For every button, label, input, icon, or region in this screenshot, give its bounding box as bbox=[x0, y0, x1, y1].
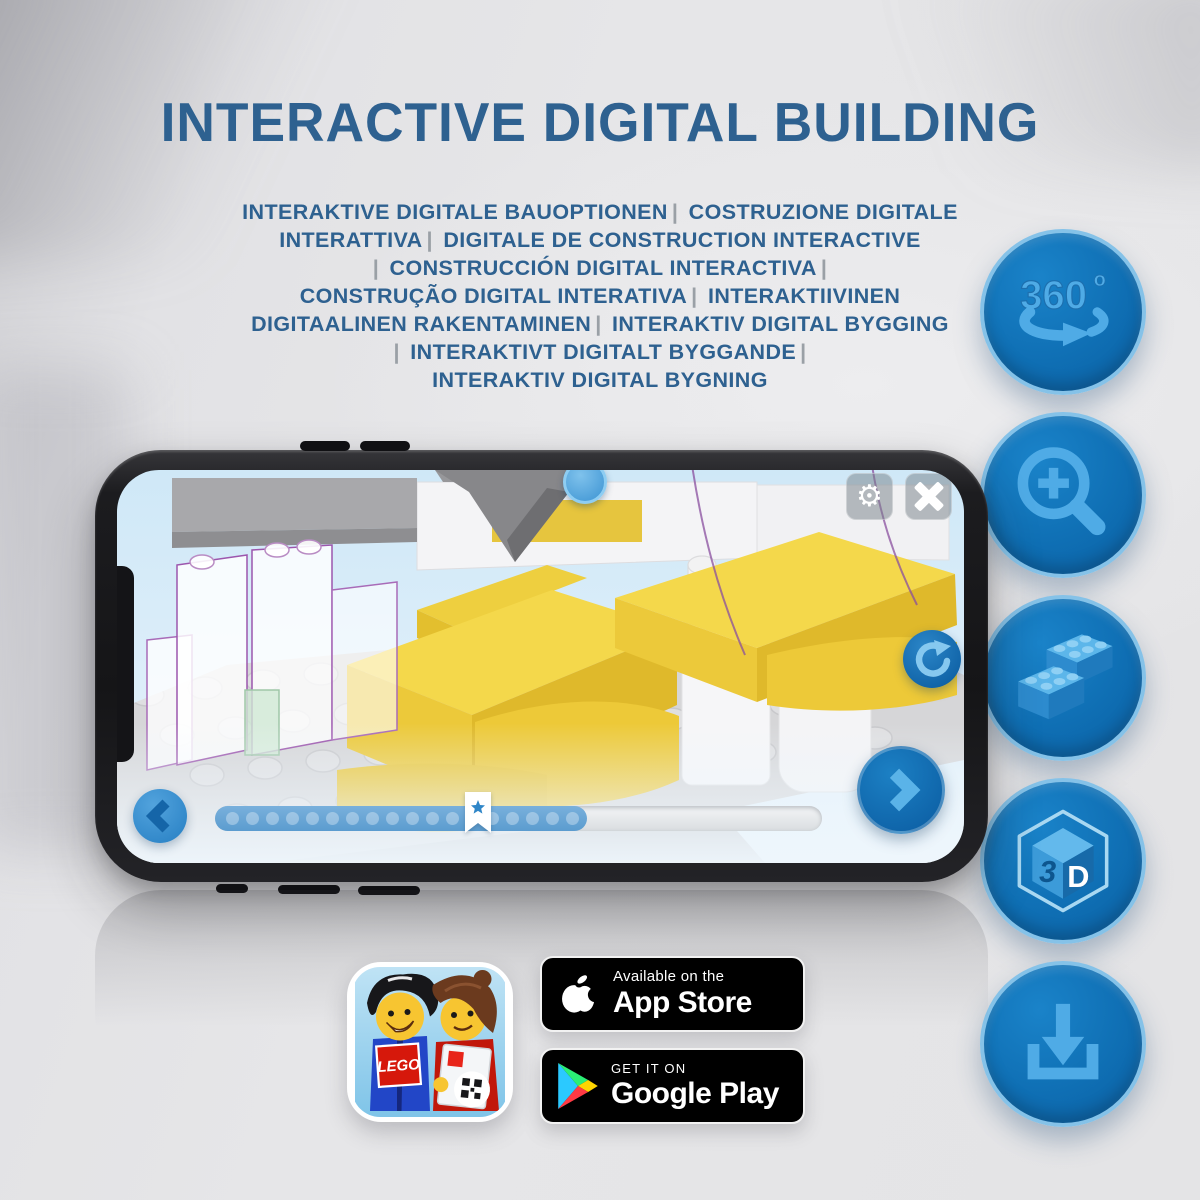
lego-logo: LEGO bbox=[376, 1044, 422, 1087]
progress-dot bbox=[546, 812, 559, 825]
badge-bottom-text: Google Play bbox=[611, 1077, 779, 1111]
progress-dot bbox=[286, 812, 299, 825]
badge-top-text: Available on the bbox=[613, 968, 752, 985]
phone-volume-button bbox=[360, 441, 410, 451]
google-play-icon bbox=[558, 1063, 598, 1109]
build-progress-slider[interactable] bbox=[215, 806, 822, 831]
svg-text:3: 3 bbox=[1039, 855, 1056, 889]
rotate-view-button[interactable] bbox=[903, 630, 961, 688]
rotate-icon bbox=[903, 630, 961, 688]
svg-text:LEGO: LEGO bbox=[377, 1056, 421, 1076]
apple-icon bbox=[558, 969, 600, 1019]
close-icon bbox=[907, 475, 951, 519]
download-badge bbox=[980, 961, 1146, 1127]
phone-side-button bbox=[358, 886, 420, 895]
progress-dot bbox=[506, 812, 519, 825]
progress-dot bbox=[446, 812, 459, 825]
svg-text:o: o bbox=[1094, 269, 1106, 291]
progress-dot bbox=[246, 812, 259, 825]
360-rotation-icon: 360 o bbox=[1004, 253, 1122, 371]
next-step-button[interactable] bbox=[857, 746, 945, 834]
settings-button[interactable]: ⚙ bbox=[846, 473, 893, 520]
page-title: INTERACTIVE DIGITAL BUILDING bbox=[18, 90, 1182, 154]
lego-app-icon[interactable]: LEGO bbox=[347, 962, 513, 1122]
progress-dot bbox=[426, 812, 439, 825]
progress-dot bbox=[526, 812, 539, 825]
progress-dot bbox=[346, 812, 359, 825]
download-icon bbox=[1004, 985, 1122, 1103]
lego-3d-model-view[interactable] bbox=[117, 470, 964, 863]
phone-screen: ⚙ bbox=[117, 470, 964, 863]
progress-dot bbox=[566, 812, 579, 825]
promo-canvas: INTERACTIVE DIGITAL BUILDING INTERAKTIVE… bbox=[0, 0, 1200, 1200]
zoom-in-icon bbox=[1004, 436, 1122, 554]
badge-bottom-text: App Store bbox=[613, 986, 752, 1020]
chevron-left-icon bbox=[133, 789, 187, 843]
progress-dot bbox=[386, 812, 399, 825]
phone-volume-button bbox=[300, 441, 350, 451]
phone-notch bbox=[117, 566, 134, 762]
app-store-badge[interactable]: Available on the App Store bbox=[540, 956, 805, 1032]
phone-side-button bbox=[278, 885, 340, 894]
progress-dot bbox=[226, 812, 239, 825]
transparent-ghost-bricks bbox=[147, 540, 397, 770]
360-rotation-badge: 360 o bbox=[980, 229, 1146, 395]
gear-icon: ⚙ bbox=[856, 482, 883, 512]
progress-dot bbox=[366, 812, 379, 825]
brick-badge bbox=[980, 595, 1146, 761]
progress-filled bbox=[215, 806, 587, 831]
badge-top-text: GET IT ON bbox=[611, 1061, 779, 1076]
phone-side-button bbox=[216, 884, 248, 893]
progress-dot bbox=[326, 812, 339, 825]
progress-dot bbox=[266, 812, 279, 825]
subtitle-line: INTERAKTIVE DIGITALE BAUOPTIONEN| COSTRU… bbox=[0, 198, 1200, 226]
progress-dot bbox=[306, 812, 319, 825]
3d-badge: 3 D bbox=[980, 778, 1146, 944]
lego-app-artwork: LEGO bbox=[352, 967, 508, 1117]
google-play-badge[interactable]: GET IT ON Google Play bbox=[540, 1048, 805, 1124]
feature-icon-column: 360 o bbox=[980, 229, 1146, 1127]
close-button[interactable] bbox=[905, 473, 952, 520]
star-bookmark-marker[interactable] bbox=[465, 792, 491, 834]
3d-cube-icon: 3 D bbox=[1004, 802, 1122, 920]
brick-stack-icon bbox=[1004, 619, 1122, 737]
zoom-badge bbox=[980, 412, 1146, 578]
chevron-right-icon bbox=[860, 746, 942, 834]
progress-dot bbox=[406, 812, 419, 825]
previous-step-button[interactable] bbox=[133, 789, 187, 843]
svg-text:D: D bbox=[1067, 860, 1089, 894]
